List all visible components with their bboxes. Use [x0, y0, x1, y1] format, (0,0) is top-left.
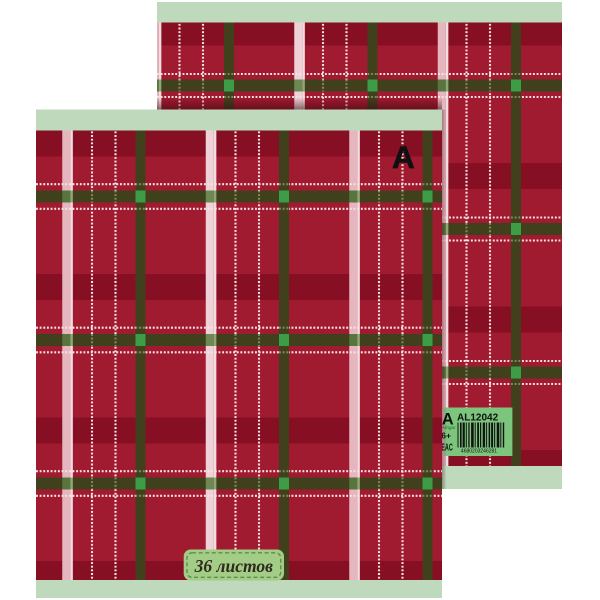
svg-text:AL12042: AL12042	[457, 413, 499, 424]
svg-text:4680203246281: 4680203246281	[461, 449, 497, 455]
svg-text:36 листов: 36 листов	[194, 556, 273, 576]
svg-text:A: A	[392, 139, 415, 175]
